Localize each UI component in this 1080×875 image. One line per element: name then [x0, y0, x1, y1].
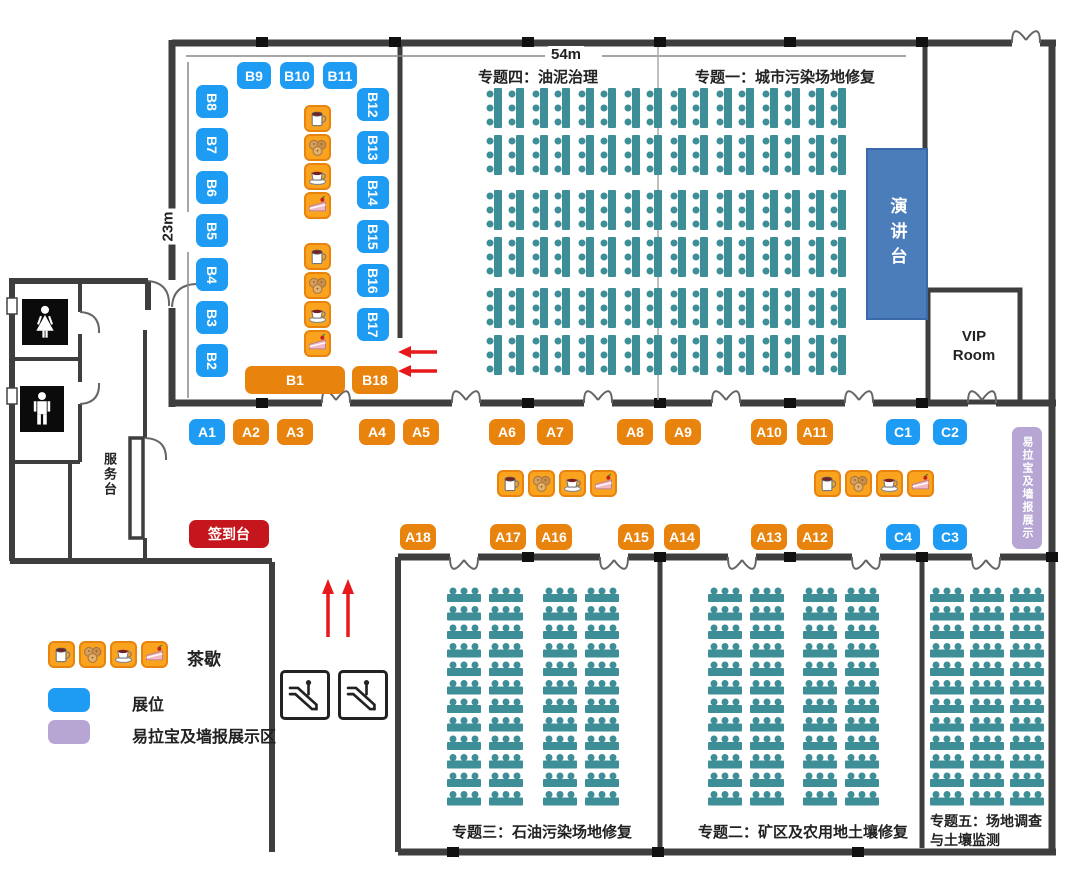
booth-B6: B6 — [196, 171, 228, 204]
booth-B12: B12 — [357, 88, 389, 121]
coffee-icon — [876, 470, 903, 497]
booth-C1: C1 — [886, 419, 920, 445]
booth-A5: A5 — [403, 419, 439, 445]
booth-B4: B4 — [196, 258, 228, 291]
booth-B11: B11 — [323, 62, 357, 89]
topic-5-label: 专题五：场地调查与土壤监测 — [930, 812, 1044, 850]
cake-icon — [304, 192, 331, 219]
booth-B15: B15 — [357, 220, 389, 253]
puffs-icon — [845, 470, 872, 497]
booth-A14: A14 — [664, 524, 700, 550]
width-dimension-label: 54m — [548, 46, 584, 63]
booth-A12: A12 — [797, 524, 833, 550]
puffs-icon — [528, 470, 555, 497]
topic-1-label: 专题一：城市污染场地修复 — [695, 66, 875, 87]
mug-icon — [814, 470, 841, 497]
booth-B9: B9 — [237, 62, 271, 89]
puffs-icon — [79, 641, 106, 668]
booth-B10: B10 — [280, 62, 314, 89]
booth-A18: A18 — [400, 524, 436, 550]
mug-icon — [497, 470, 524, 497]
legend-banner-label: 易拉宝及墙报展示区 — [132, 723, 276, 747]
booth-A9: A9 — [665, 419, 701, 445]
mug-icon — [48, 641, 75, 668]
legend-booth-label: 展位 — [132, 691, 164, 715]
booth-B5: B5 — [196, 214, 228, 247]
booth-A15: A15 — [618, 524, 654, 550]
coffee-icon — [110, 641, 137, 668]
booth-A6: A6 — [489, 419, 525, 445]
booth-B3: B3 — [196, 301, 228, 334]
booth-B13: B13 — [357, 131, 389, 164]
booth-A13: A13 — [751, 524, 787, 550]
vip-room: VIP Room — [928, 290, 1020, 402]
cake-icon — [907, 470, 934, 497]
booth-B18: B18 — [352, 366, 398, 394]
booth-A2: A2 — [233, 419, 269, 445]
coffee-icon — [304, 163, 331, 190]
poster-display-banner: 易拉宝及墙报展示 — [1012, 427, 1042, 549]
floor-plan: 54m 23m 专题四：油泥治理 专题一：城市污染场地修复 专题三：石油污染场地… — [0, 0, 1080, 875]
booth-B14: B14 — [357, 176, 389, 209]
men-toilet-icon — [20, 386, 64, 432]
escalator-icon — [338, 670, 388, 720]
booth-B8: B8 — [196, 85, 228, 118]
booth-C4: C4 — [886, 524, 920, 550]
cake-icon — [141, 641, 168, 668]
escalator-icon — [280, 670, 330, 720]
booth-B17: B17 — [357, 308, 389, 341]
seating-layer — [447, 88, 1044, 806]
booth-A11: A11 — [797, 419, 833, 445]
women-toilet-icon — [22, 299, 68, 345]
podium: 演讲台 — [866, 148, 928, 320]
booth-A3: A3 — [277, 419, 313, 445]
legend-tea-label: 茶歇 — [187, 645, 221, 670]
height-dimension-label: 23m — [160, 208, 177, 244]
service-desk-label: 服务台 — [100, 452, 119, 497]
booth-C2: C2 — [933, 419, 967, 445]
coffee-icon — [304, 301, 331, 328]
service-desk-counter — [130, 438, 143, 538]
booth-A7: A7 — [537, 419, 573, 445]
mug-icon — [304, 243, 331, 270]
vip-room-line1: VIP — [962, 327, 986, 347]
booth-C3: C3 — [933, 524, 967, 550]
booth-A17: A17 — [490, 524, 526, 550]
booth-A1: A1 — [189, 419, 225, 445]
booth-B7: B7 — [196, 128, 228, 161]
topic-2-label: 专题二：矿区及农用地土壤修复 — [698, 821, 908, 842]
topic-3-label: 专题三：石油污染场地修复 — [452, 821, 632, 842]
puffs-icon — [304, 134, 331, 161]
booth-A10: A10 — [751, 419, 787, 445]
booth-A16: A16 — [536, 524, 572, 550]
topic-4-label: 专题四：油泥治理 — [478, 66, 598, 87]
legend-banner-swatch — [48, 720, 90, 744]
booth-B16: B16 — [357, 264, 389, 297]
booth-A8: A8 — [617, 419, 653, 445]
cake-icon — [590, 470, 617, 497]
booth-签到台: 签到台 — [189, 520, 269, 548]
vip-room-line2: Room — [953, 346, 996, 366]
puffs-icon — [304, 272, 331, 299]
mug-icon — [304, 105, 331, 132]
cake-icon — [304, 330, 331, 357]
booth-B1: B1 — [245, 366, 345, 394]
booth-B2: B2 — [196, 344, 228, 377]
booth-A4: A4 — [359, 419, 395, 445]
legend-booth-swatch — [48, 688, 90, 712]
coffee-icon — [559, 470, 586, 497]
